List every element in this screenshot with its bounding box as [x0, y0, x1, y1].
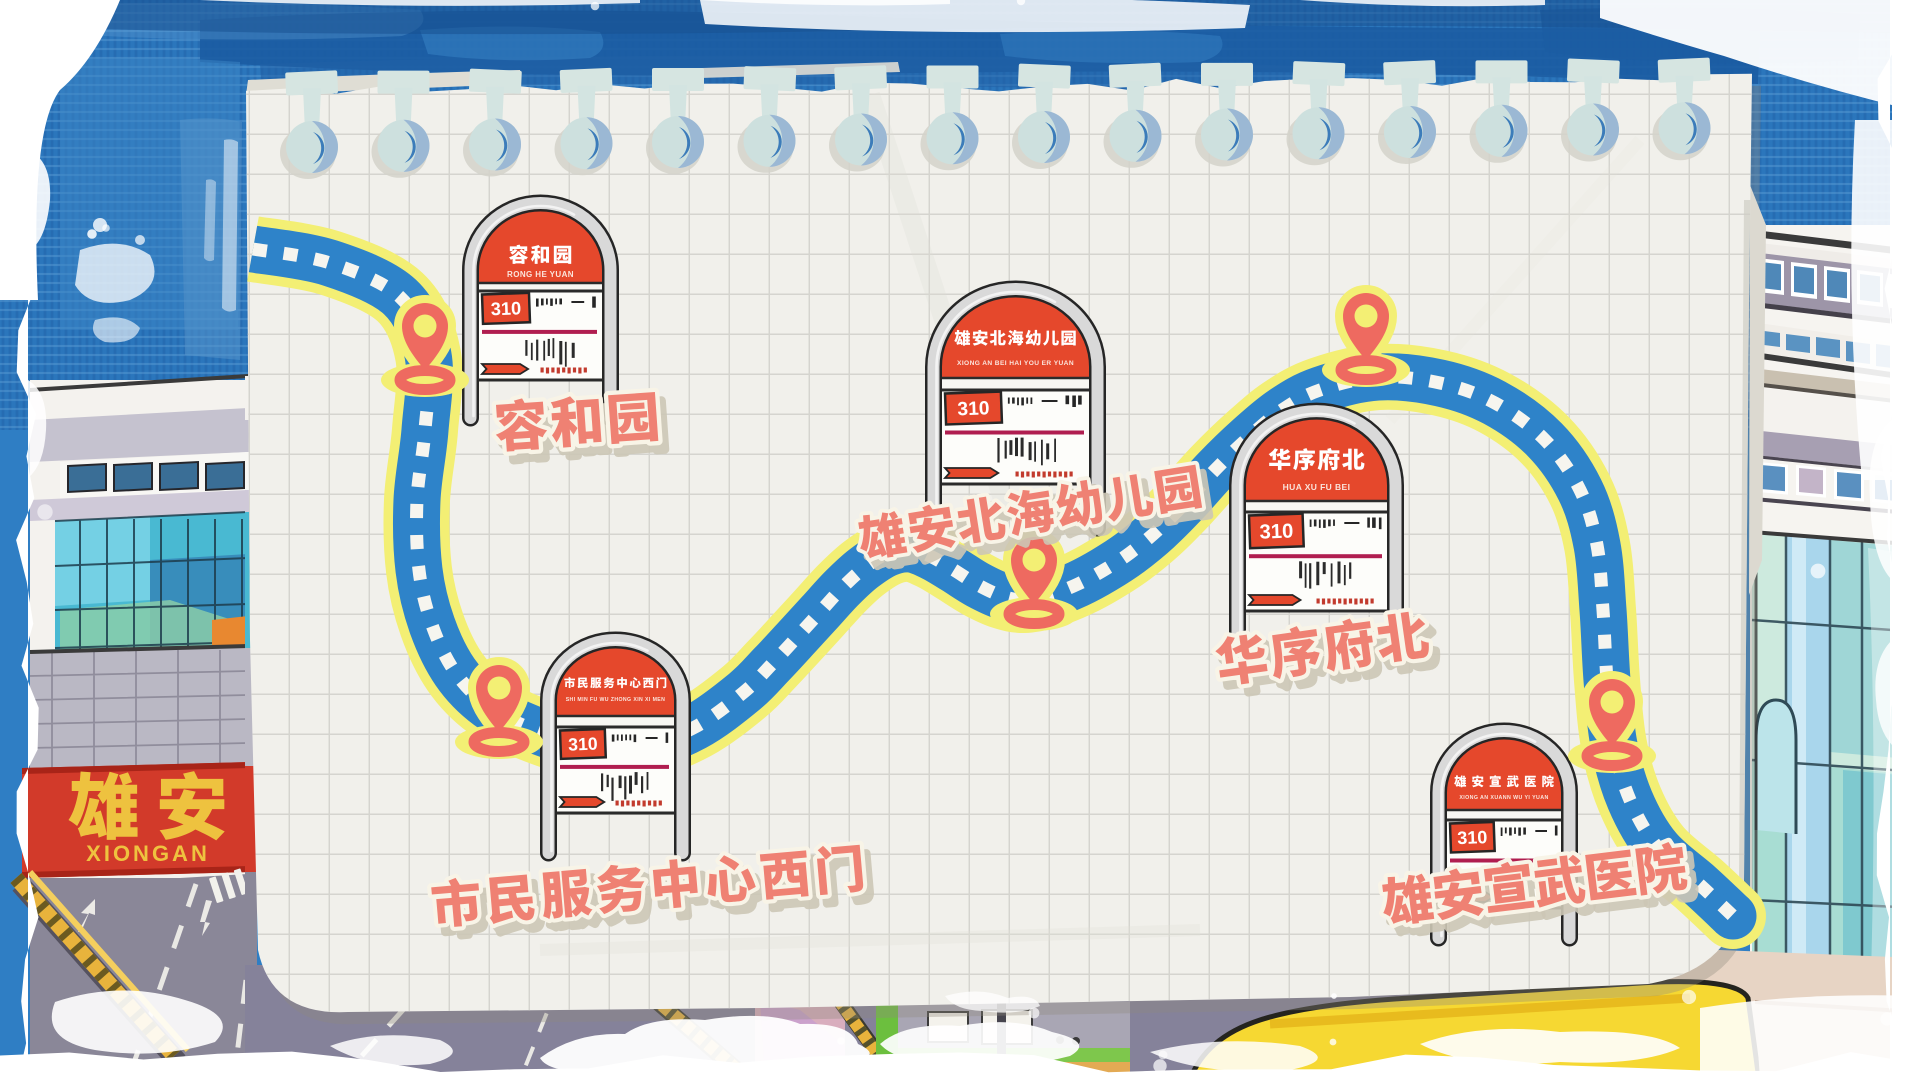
- svg-text:310: 310: [490, 298, 521, 319]
- svg-text:HUA XU FU BEI: HUA XU FU BEI: [1283, 482, 1351, 492]
- svg-text:RONG HE YUAN: RONG HE YUAN: [507, 270, 574, 279]
- svg-text:XIONG AN XUANN WU YI YUAN: XIONG AN XUANN WU YI YUAN: [1459, 795, 1548, 801]
- svg-text:310: 310: [957, 398, 990, 420]
- svg-text:XIONG AN BEI HAI YOU ER YUAN: XIONG AN BEI HAI YOU ER YUAN: [957, 360, 1074, 367]
- svg-text:SHI MIN FU WU ZHONG XIN XI MEN: SHI MIN FU WU ZHONG XIN XI MEN: [566, 697, 666, 703]
- svg-text:310: 310: [1259, 520, 1294, 543]
- svg-text:XIONGAN: XIONGAN: [86, 841, 210, 866]
- svg-text:310: 310: [1457, 827, 1488, 848]
- svg-text:310: 310: [568, 734, 598, 755]
